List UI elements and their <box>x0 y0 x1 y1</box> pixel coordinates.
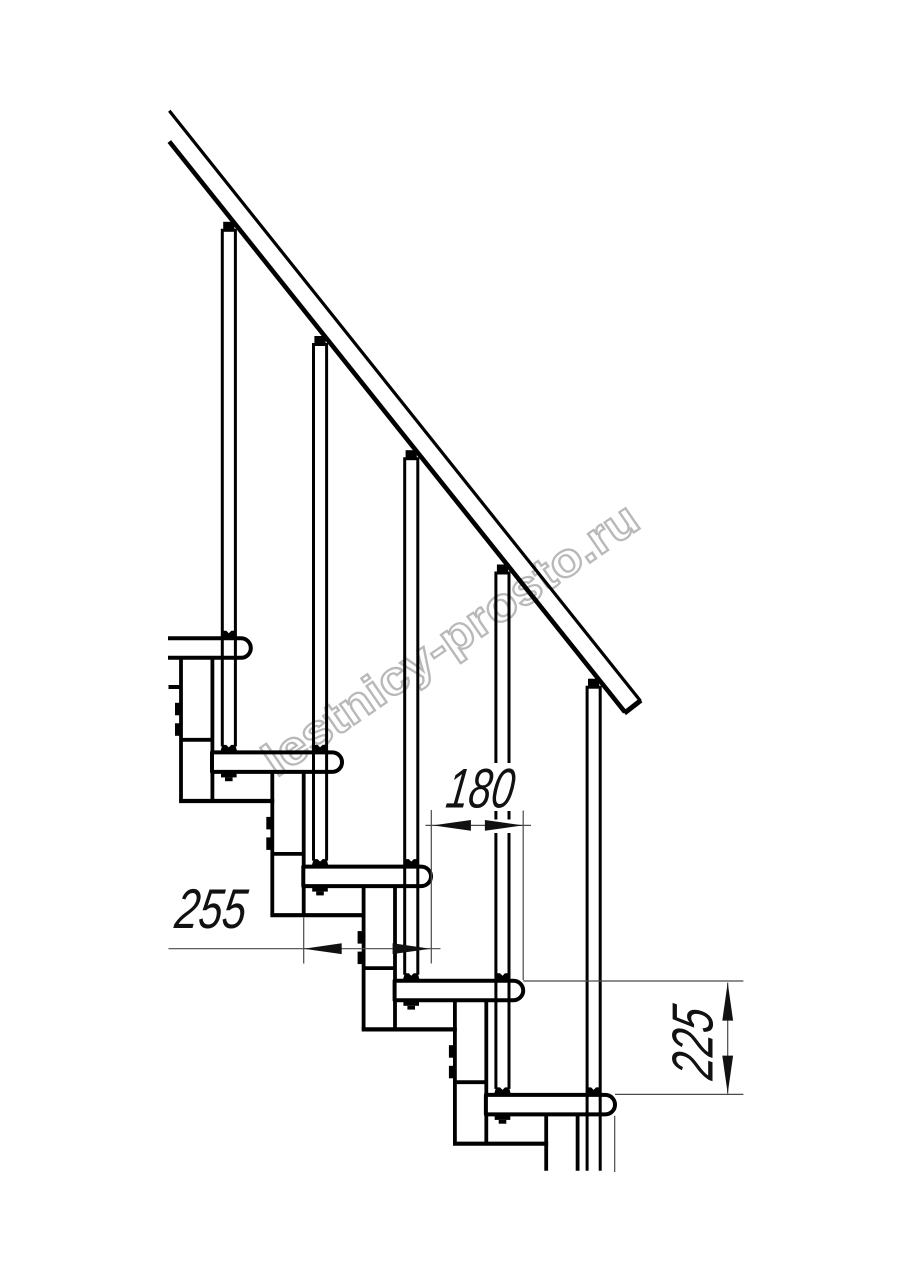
svg-text:255: 255 <box>171 878 251 941</box>
svg-text:180: 180 <box>443 758 519 820</box>
svg-text:225: 225 <box>660 1000 724 1085</box>
